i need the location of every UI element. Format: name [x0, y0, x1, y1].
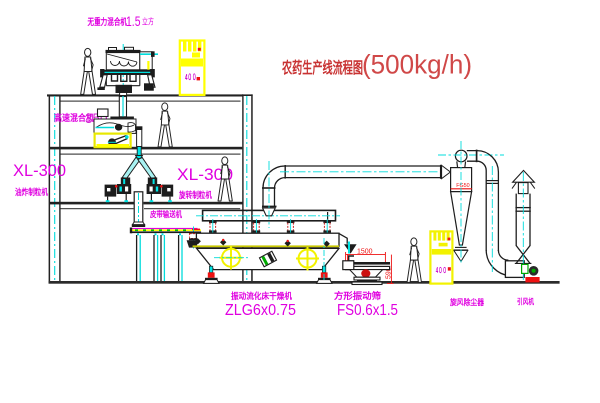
svg-text:XL-300: XL-300: [13, 162, 66, 180]
svg-text:皮带输送机: 皮带输送机: [149, 209, 182, 219]
svg-text:FG50: FG50: [456, 183, 469, 189]
svg-text:旋风除尘器: 旋风除尘器: [449, 297, 485, 307]
svg-text:油炸制粒机: 油炸制粒机: [15, 187, 48, 197]
svg-text:旋转制粒机: 旋转制粒机: [178, 190, 212, 200]
svg-text:(500kg/h): (500kg/h): [362, 50, 472, 80]
svg-text:1.5: 1.5: [126, 14, 141, 29]
svg-text:4００: 4００: [185, 72, 197, 82]
svg-text:FS0.6x1.5: FS0.6x1.5: [337, 302, 398, 319]
svg-text:无重力混合机: 无重力混合机: [87, 16, 127, 27]
svg-text:振动流化床干燥机: 振动流化床干燥机: [231, 291, 292, 301]
svg-text:1500: 1500: [357, 249, 373, 256]
svg-text:4００: 4００: [436, 266, 447, 275]
svg-text:ZLG6x0.75: ZLG6x0.75: [225, 302, 296, 319]
svg-text:农药生产线流程图: 农药生产线流程图: [281, 58, 363, 77]
svg-text:引风机: 引风机: [517, 296, 534, 306]
svg-text:方形振动筛: 方形振动筛: [334, 290, 381, 301]
svg-text:立方: 立方: [142, 17, 154, 27]
